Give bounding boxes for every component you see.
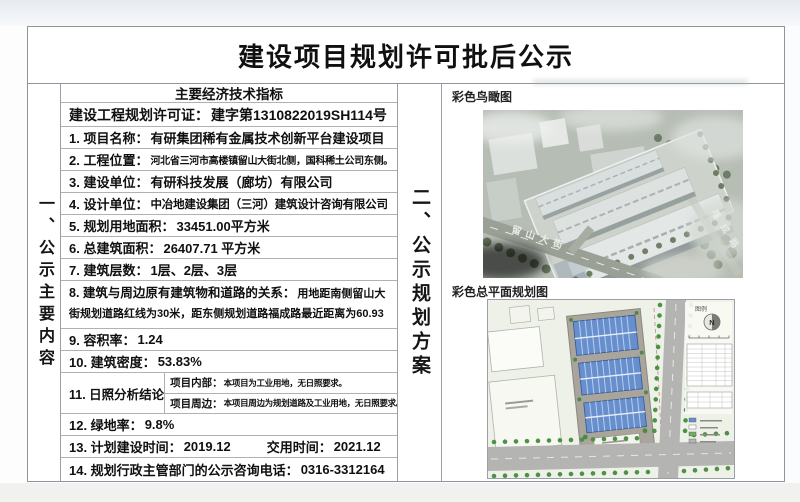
row-floor-area: 6. 总建筑面积： 26407.71 平方米 [61, 237, 397, 259]
location-label: 2. 工程位置： [69, 150, 148, 169]
design-unit-value: 中冶地建设集团（三河）建筑设计咨询有限公司 [150, 196, 387, 212]
siteplan-image: 图例 N [487, 299, 735, 479]
section-label-plan-scheme: 二、公示规划方案 [406, 187, 433, 379]
floor-area-value: 26407.71 平方米 [163, 238, 260, 257]
workshop-building-3 [584, 397, 647, 433]
green-ratio-value: 9.8% [145, 417, 175, 432]
page-background-left [0, 26, 27, 483]
density-label: 10. 建筑密度： [69, 352, 156, 371]
permit-value: 建字第1310822019SH114号 [211, 105, 387, 125]
permit-label: 建设工程规划许可证： [69, 105, 209, 125]
notice-board: 建设项目规划许可批后公示 一、公示主要内容 主要经济技术指标 建设工程规划许可证… [27, 26, 785, 482]
plot-ratio-value: 1.24 [137, 332, 162, 347]
sunlight-surrounding-row: 项目周边： 本项目周边为规划道路及工业用地，无日照要求。 [165, 394, 397, 414]
land-area-label: 5. 规划用地面积： [69, 216, 174, 235]
construction-unit-value: 有研科技发展（廊坊）有限公司 [150, 172, 332, 191]
sunlight-internal-value: 本项目为工业用地，无日照要求。 [224, 377, 347, 389]
location-value: 河北省三河市高楼镇留山大街北侧，国科稀土公司东侧。 [150, 152, 393, 167]
legend-title: 图例 [695, 305, 707, 313]
row-design-unit: 4. 设计单位： 中冶地建设集团（三河）建筑设计咨询有限公司 [61, 193, 397, 215]
row-building-density: 10. 建筑密度： 53.83% [61, 351, 397, 373]
sunlight-internal-label: 项目内部： [170, 375, 223, 390]
figures-column: 彩色鸟瞰图 [442, 84, 784, 481]
construction-unit-label: 3. 建设单位： [69, 172, 148, 191]
row-schedule: 13. 计划建设时间： 2019.12 交用时间： 2021.12 [61, 436, 397, 458]
sunlight-surrounding-value: 本项目周边为规划道路及工业用地，无日照要求。 [224, 397, 397, 409]
row-consult-phone: 14. 规划行政主管部门的公示咨询电话： 0316-3312164 [61, 458, 397, 481]
table-header: 主要经济技术指标 [61, 84, 397, 103]
land-area-value: 33451.00平方米 [176, 216, 269, 235]
row-surroundings-relation: 8. 建筑与周边原有建筑物和道路的关系：用地距南侧留山大街规划道路红线为30米，… [61, 281, 397, 329]
density-value: 53.83% [158, 354, 202, 369]
page-title: 建设项目规划许可批后公示 [28, 27, 784, 84]
sunlight-surrounding-label: 项目周边： [170, 396, 223, 411]
indicator-mini-table [687, 344, 732, 408]
row-plot-ratio: 9. 容积率： 1.24 [61, 329, 397, 351]
phone-label: 14. 规划行政主管部门的公示咨询电话： [69, 460, 299, 479]
sunlight-label: 11. 日照分析结论 [61, 373, 165, 413]
row-sunlight-analysis: 11. 日照分析结论 项目内部： 本项目为工业用地，无日照要求。 项目周边： 本… [61, 373, 397, 414]
siteplan-caption: 彩色总平面规划图 [452, 283, 548, 300]
north-arrow-icon: N [704, 314, 720, 330]
row-land-area: 5. 规划用地面积： 33451.00平方米 [61, 215, 397, 237]
floor-area-label: 6. 总建筑面积： [69, 238, 161, 257]
row-construction-unit: 3. 建设单位： 有研科技发展（廊坊）有限公司 [61, 171, 397, 193]
design-unit-label: 4. 设计单位： [69, 194, 148, 213]
workshop-building-2 [579, 357, 643, 395]
start-time-label: 13. 计划建设时间： [69, 437, 182, 456]
section-label-right-column: 二、公示规划方案 [398, 84, 442, 481]
project-name-label: 1. 项目名称： [69, 128, 148, 147]
plot-ratio-label: 9. 容积率： [69, 330, 135, 349]
indicator-table: 主要经济技术指标 建设工程规划许可证： 建字第1310822019SH114号 … [61, 84, 398, 481]
workshop-building-1 [573, 315, 638, 355]
row-green-ratio: 12. 绿地率： 9.8% [61, 414, 397, 436]
row-permit-number: 建设工程规划许可证： 建字第1310822019SH114号 [61, 103, 397, 127]
page-background-top [0, 0, 800, 26]
siteplan-drawing: 图例 N [488, 300, 734, 478]
aerial-view-caption: 彩色鸟瞰图 [452, 88, 512, 105]
phone-value: 0316-3312164 [301, 462, 385, 477]
sunlight-internal-row: 项目内部： 本项目为工业用地，无日照要求。 [165, 373, 397, 394]
aerial-view-rendering: 留山大街 福成路 [483, 110, 743, 278]
surroundings-label: 8. 建筑与周边原有建筑物和道路的关系： [69, 286, 295, 300]
storeys-value: 1层、2层、3层 [150, 260, 237, 279]
storeys-label: 7. 建筑层数： [69, 260, 148, 279]
notice-body: 一、公示主要内容 主要经济技术指标 建设工程规划许可证： 建字第13108220… [28, 84, 784, 481]
sunlight-results: 项目内部： 本项目为工业用地，无日照要求。 项目周边： 本项目周边为规划道路及工… [165, 373, 397, 413]
delivery-time-label: 交用时间： [267, 437, 332, 456]
project-name-value: 有研集团稀有金属技术创新平台建设项目 [150, 128, 384, 147]
north-letter: N [709, 318, 714, 327]
aerial-view-image: 留山大街 福成路 [483, 110, 743, 278]
row-project-name: 1. 项目名称： 有研集团稀有金属技术创新平台建设项目 [61, 127, 397, 149]
delivery-time-value: 2021.12 [334, 439, 381, 454]
row-storeys: 7. 建筑层数： 1层、2层、3层 [61, 259, 397, 281]
section-label-main-content: 一、公示主要内容 [32, 195, 56, 371]
row-project-location: 2. 工程位置： 河北省三河市高楼镇留山大街北侧，国科稀土公司东侧。 [61, 149, 397, 171]
start-time-value: 2019.12 [184, 439, 231, 454]
green-ratio-label: 12. 绿地率： [69, 415, 143, 434]
section-label-left-column: 一、公示主要内容 [28, 84, 61, 481]
page-background-bottom [0, 483, 800, 502]
